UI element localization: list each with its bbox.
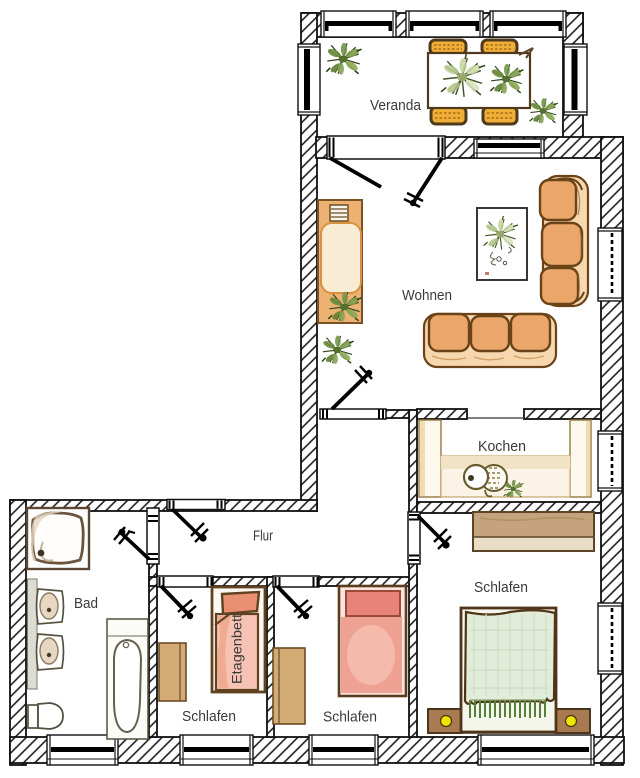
svg-text:Schlafen: Schlafen [182, 709, 236, 725]
svg-text:Etagenbett: Etagenbett [229, 614, 245, 684]
svg-text:Bad: Bad [74, 596, 98, 612]
svg-text:Kochen: Kochen [478, 439, 526, 455]
svg-text:Wohnen: Wohnen [402, 288, 452, 304]
svg-text:Veranda: Veranda [370, 98, 422, 114]
svg-text:Schlafen: Schlafen [474, 580, 528, 596]
svg-text:Flur: Flur [253, 529, 273, 545]
svg-text:Schlafen: Schlafen [323, 710, 377, 726]
